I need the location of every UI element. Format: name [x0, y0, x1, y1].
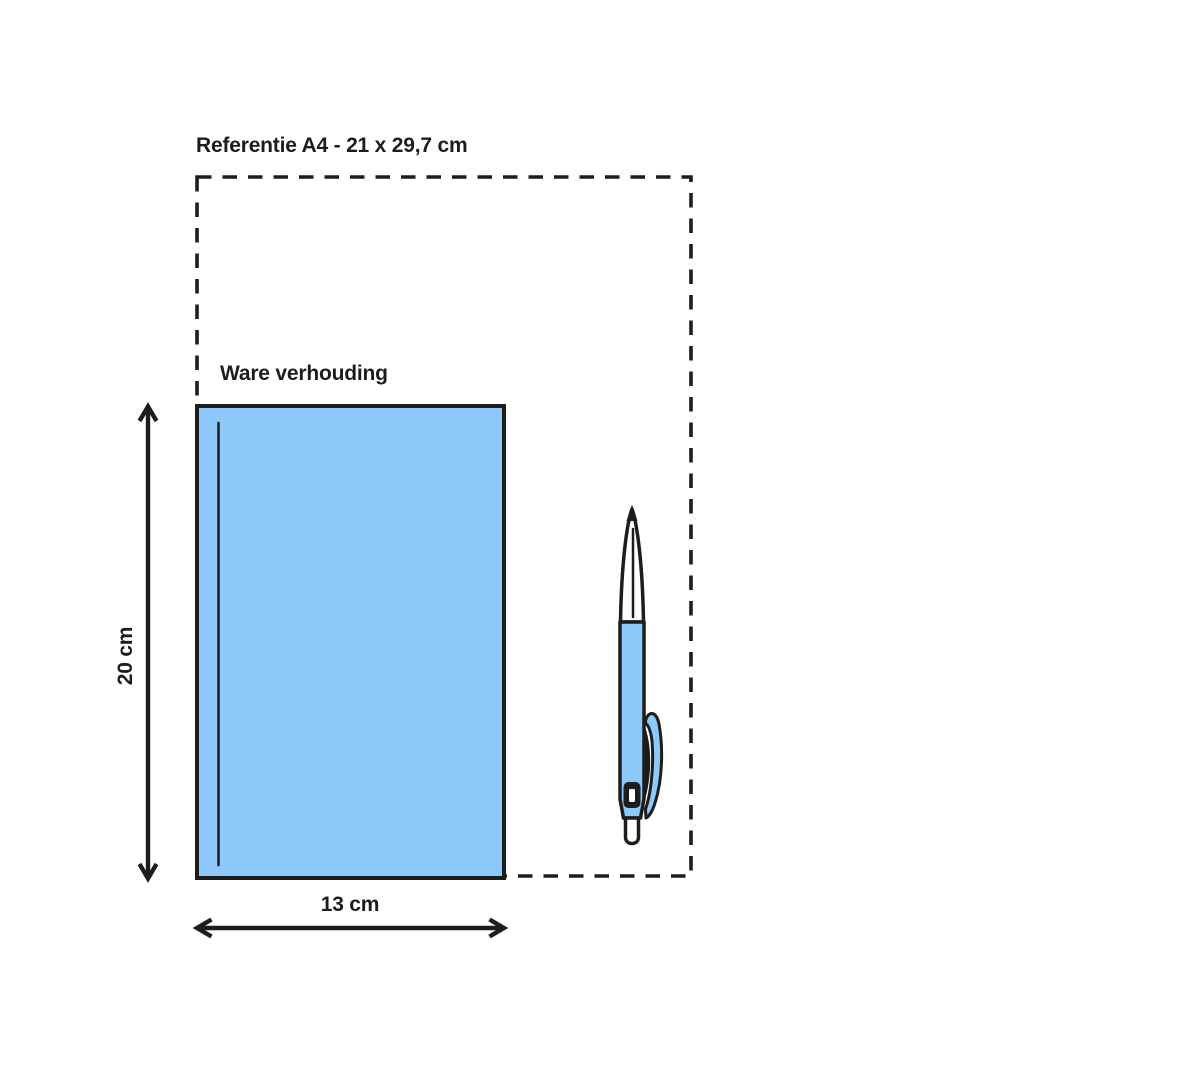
- pen-push-button: [626, 818, 639, 844]
- ballpoint-pen-illustration: [620, 505, 662, 844]
- width-dimension-label: 13 cm: [288, 893, 412, 917]
- true-scale-label: Ware verhouding: [220, 362, 388, 386]
- dimension-diagram: Referentie A4 - 21 x 29,7 cm Ware verhou…: [0, 0, 1200, 1066]
- product-true-size-rectangle: [197, 406, 504, 878]
- pen-tip: [627, 505, 638, 522]
- reference-size-title: Referentie A4 - 21 x 29,7 cm: [196, 134, 467, 158]
- height-dimension-label: 20 cm: [114, 596, 138, 716]
- diagram-artwork: [0, 0, 1200, 1066]
- height-dimension-arrow: [140, 407, 157, 879]
- pen-clip-mount-slot: [629, 789, 635, 802]
- width-dimension-arrow: [197, 920, 504, 937]
